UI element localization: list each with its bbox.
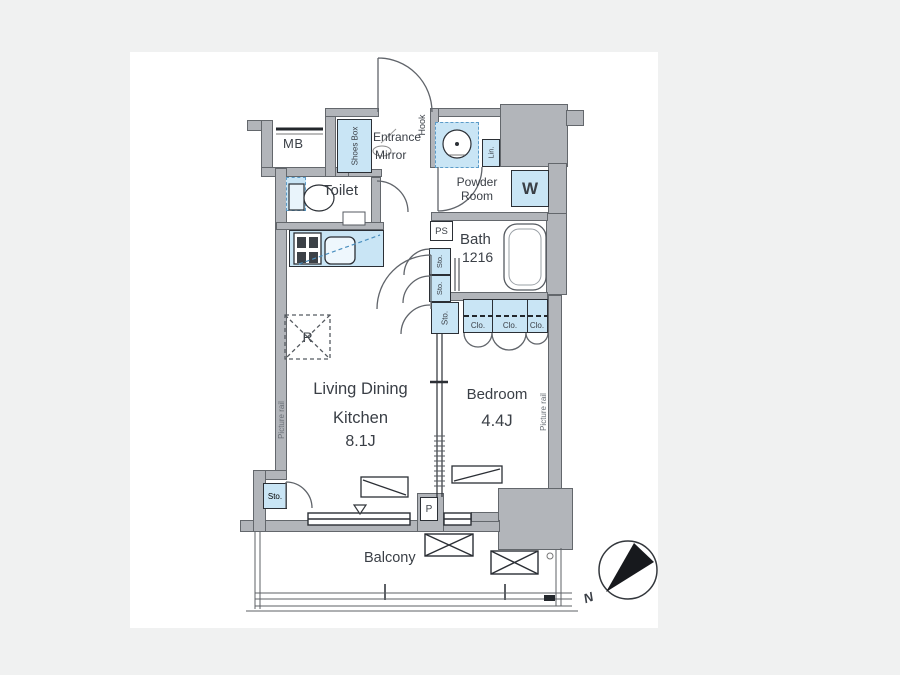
refrigerator-space: R [285, 315, 330, 359]
label-linen: Lin. [485, 136, 498, 170]
washer-label: W [522, 179, 538, 199]
label-kitchen: Kitchen [303, 409, 418, 428]
label-bath-size: 1216 [462, 249, 493, 265]
label-living-dining: Living Dining [303, 380, 418, 399]
wall-segment [432, 108, 503, 117]
toilet-washlet-counter [286, 177, 306, 211]
wall-segment [240, 520, 500, 532]
label-toilet: Toilet [323, 182, 358, 199]
wall-segment [371, 177, 381, 226]
label-storage-3: Sto. [438, 302, 452, 335]
label-entrance: Entrance [373, 131, 421, 145]
pipe-space-box: PS [430, 221, 453, 241]
wall-segment [566, 110, 584, 126]
label-powder-line1: Powder [448, 176, 506, 190]
wall-segment [500, 104, 568, 167]
pipe-box: P [420, 497, 438, 521]
pipe-label: P [426, 504, 433, 515]
wall-segment [546, 213, 567, 295]
label-closet-3: Clo. [526, 321, 548, 330]
label-picture-rail-right: Picture rail [537, 376, 549, 448]
label-closet-1: Clo. [463, 321, 493, 330]
washing-machine-space: W [511, 170, 549, 207]
label-mirror: Mirror [375, 149, 406, 163]
wall-segment [325, 108, 336, 177]
wall-segment [471, 512, 499, 522]
wall-segment [548, 163, 567, 215]
wall-segment [548, 295, 562, 490]
storage-box-living: Sto. [263, 483, 287, 509]
wall-segment [325, 108, 379, 117]
label-bath: Bath [460, 231, 491, 248]
label-living-size: 8.1J [303, 433, 418, 451]
label-storage-2: Sto. [433, 272, 446, 305]
ps-label: PS [435, 226, 448, 237]
label-bedroom-size: 4.4J [456, 412, 538, 431]
refrigerator-label: R [302, 329, 312, 345]
label-hook: Hook [415, 106, 429, 144]
floor-plan-page: W Sto. PS P R [0, 0, 900, 675]
label-mb: MB [283, 137, 304, 152]
label-balcony: Balcony [364, 550, 416, 567]
wall-segment [498, 488, 573, 550]
storage-label: Sto. [268, 492, 282, 501]
label-bedroom: Bedroom [456, 386, 538, 403]
label-closet-2: Clo. [492, 321, 528, 330]
label-powder-line2: Room [448, 190, 506, 204]
kitchen-counter [289, 230, 384, 267]
basin-counter [435, 122, 479, 168]
label-shoes-box: Shoes Box [348, 121, 362, 172]
wall-segment [431, 212, 548, 221]
wall-segment [276, 222, 384, 230]
label-picture-rail-left: Picture rail [275, 385, 287, 455]
label-powder-room: Powder Room [448, 176, 506, 204]
